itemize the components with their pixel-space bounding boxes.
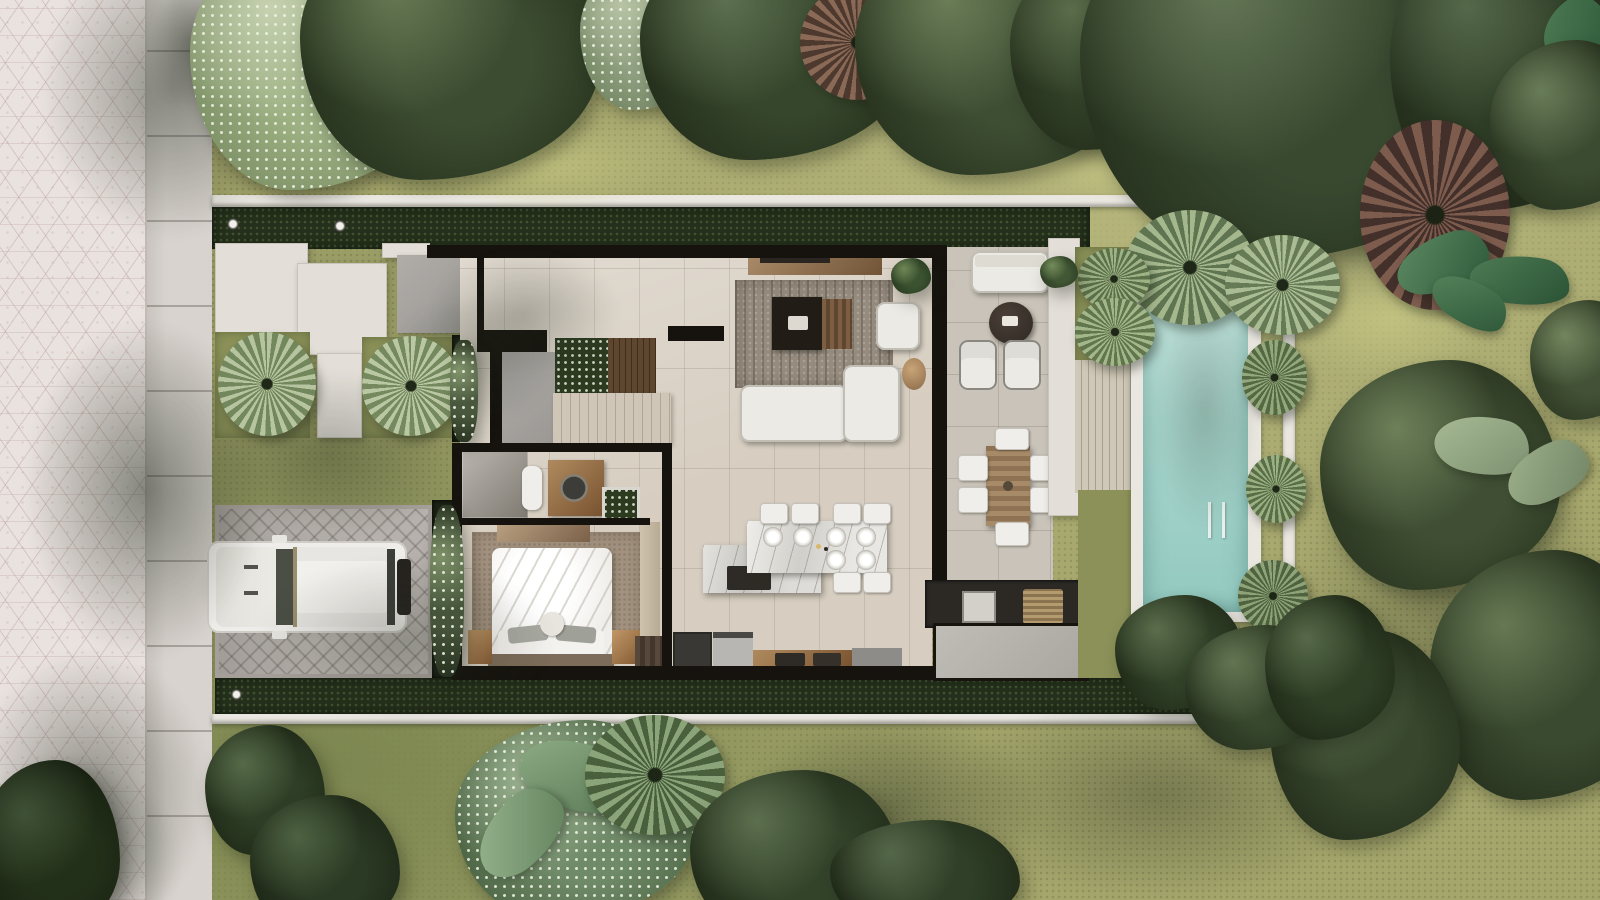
- dining-chair: [833, 572, 861, 593]
- lounge-chair: [959, 340, 997, 390]
- house-wall-south: [452, 666, 947, 680]
- place-setting: [826, 550, 846, 570]
- covered-roof-slab: [933, 623, 1089, 681]
- counter-sink: [775, 653, 805, 666]
- car-mirror: [272, 631, 287, 639]
- kitchen-appliance: [673, 632, 712, 670]
- car-windshield: [276, 549, 293, 625]
- dining-chair: [863, 503, 891, 524]
- boundary-wall-east: [1283, 195, 1295, 724]
- hedge-north: [212, 207, 1090, 249]
- outdoor-chair: [995, 522, 1029, 546]
- boundary-wall-south: [212, 714, 1295, 724]
- place-setting: [856, 527, 876, 547]
- boundary-wall-north: [212, 195, 1295, 207]
- shower: [462, 446, 528, 518]
- wicker-grill: [1023, 589, 1063, 624]
- house-wall-north: [427, 245, 947, 258]
- staircase: [553, 393, 671, 445]
- dining-chair: [791, 503, 819, 524]
- car-wiper: [244, 565, 258, 569]
- coffee-table-wood: [822, 299, 852, 349]
- candle: [824, 547, 828, 551]
- bedroom-wall: [455, 518, 650, 525]
- glass-wall-east: [932, 245, 947, 592]
- car-wiper: [244, 591, 258, 595]
- outdoor-chair: [995, 428, 1029, 450]
- interior-garden-deck: [608, 338, 656, 393]
- dining-chair: [760, 503, 788, 524]
- pool-ladder-rail: [1222, 502, 1225, 538]
- swimming-pool: [1143, 270, 1248, 612]
- interior-garden: [555, 338, 608, 393]
- outdoor-chair: [958, 487, 988, 513]
- table-centerpiece: [1003, 481, 1013, 491]
- table-tray: [788, 316, 808, 330]
- outdoor-sofa-back: [975, 255, 1045, 267]
- car-roof-frame: [293, 547, 297, 627]
- house-wall-west-lower: [452, 443, 462, 680]
- car-spare-tire: [397, 559, 411, 615]
- concrete-pad: [215, 243, 308, 333]
- candle: [816, 544, 821, 549]
- utility-room-floor: [502, 352, 559, 445]
- palm-bed: [215, 332, 310, 438]
- armchair: [876, 302, 920, 350]
- entry-path: [317, 353, 362, 438]
- pool-ladder-rail: [1208, 502, 1211, 538]
- place-setting: [793, 527, 813, 547]
- parked-suv: [200, 535, 420, 640]
- floor-basket: [902, 358, 926, 390]
- sidewalk: [147, 0, 212, 900]
- nightstand: [468, 630, 492, 664]
- outdoor-sink: [962, 591, 996, 623]
- utility-wall: [490, 352, 502, 445]
- wall-console: [668, 326, 724, 341]
- place-setting: [763, 527, 783, 547]
- car-rear-window: [387, 549, 395, 625]
- pool-lawn-strip: [1078, 490, 1136, 678]
- place-setting: [826, 527, 846, 547]
- dining-chair: [833, 503, 861, 524]
- refrigerator: [713, 632, 753, 668]
- car-roof: [293, 547, 387, 627]
- counter-gray: [852, 648, 902, 668]
- lounge-chair: [1003, 340, 1041, 390]
- headboard: [488, 654, 614, 666]
- toilet: [522, 466, 542, 510]
- bedroom-wall-east: [662, 443, 672, 680]
- dining-chair: [863, 572, 891, 593]
- counter-stove: [813, 653, 841, 666]
- stone-sink: [560, 474, 588, 502]
- sofa-seat: [740, 385, 848, 442]
- hedge-south: [215, 678, 1290, 714]
- car-mirror: [272, 535, 287, 543]
- outdoor-chair: [958, 455, 988, 481]
- bath-wall: [452, 443, 672, 452]
- mosaic-street: [0, 0, 147, 900]
- bed-throw: [540, 612, 564, 636]
- place-setting: [856, 550, 876, 570]
- palm-bed: [362, 337, 458, 438]
- table-tray: [1002, 316, 1018, 326]
- sofa-chaise: [843, 365, 900, 442]
- house-wall-west-upper: [477, 258, 484, 334]
- kitchen-counter-block: [477, 330, 547, 352]
- car-hood: [216, 547, 278, 627]
- site-plan-render: [0, 0, 1600, 900]
